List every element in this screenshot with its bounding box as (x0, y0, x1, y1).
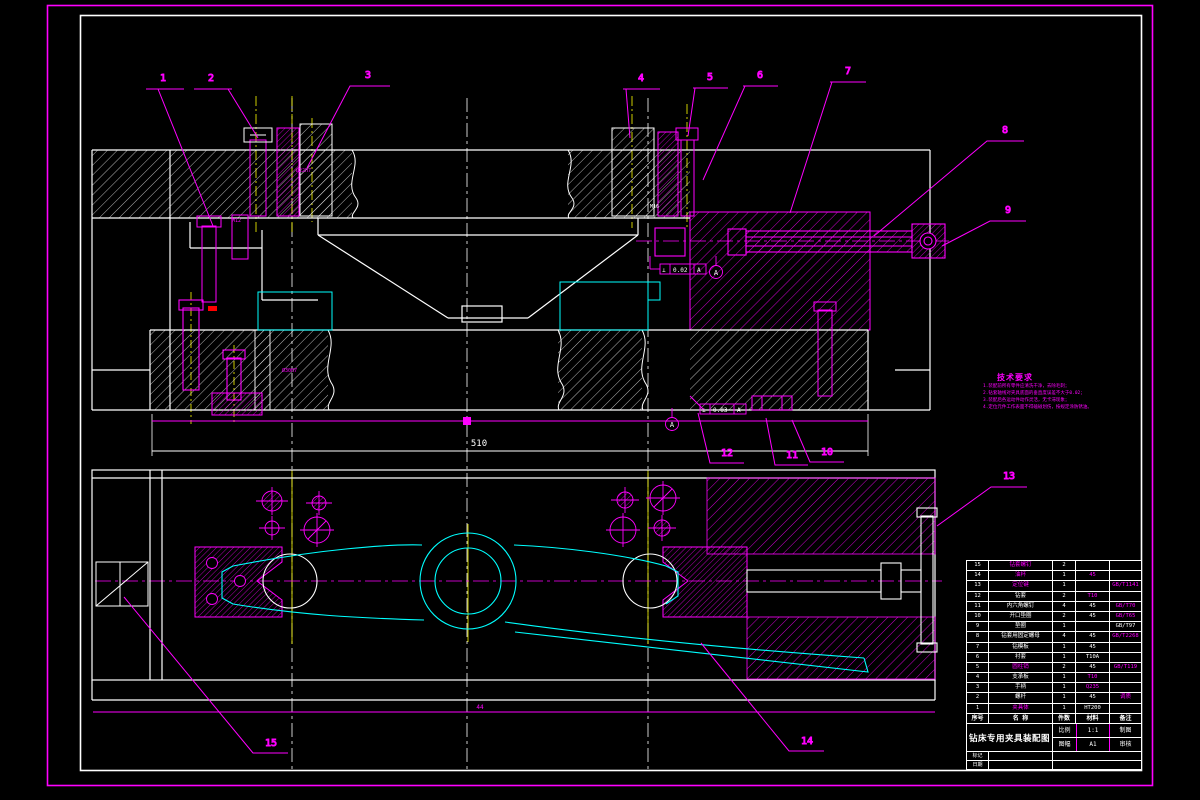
balloon-10: 10 (792, 420, 844, 462)
bom-row: 5 圆柱销 2 45 GB/T119 (967, 663, 1141, 673)
svg-text:6: 6 (757, 70, 763, 81)
bom-row: 7 钻模板 1 45 (967, 643, 1141, 653)
workpiece-section-outline (258, 282, 660, 330)
plan-left-adjuster (96, 562, 148, 606)
svg-text:12: 12 (721, 448, 733, 459)
red-mark (208, 306, 217, 311)
technical-requirements: 技术要求 1.装配前所有零件应清洗干净，去除毛刺；2.钻套轴线对夹具底面的垂直度… (983, 372, 1095, 411)
dimensions-plan: 44 (93, 704, 935, 712)
bom-row: 6 衬套 1 T10A (967, 653, 1141, 663)
section-view (92, 124, 945, 415)
svg-text:5: 5 (707, 72, 713, 83)
svg-text:15: 15 (265, 738, 277, 749)
title-block: 15 钻套螺钉 2 14 油杯 1 45 13 定位键 1 GB/T1141 (966, 560, 1142, 770)
cad-drawing-canvas: 510 ⊥ 0.02 A A ⊥ 0.03 A A Ø22H7 M12 Ø30H… (0, 0, 1200, 800)
svg-text:7: 7 (845, 66, 851, 77)
svg-text:A: A (670, 421, 675, 429)
svg-text:14: 14 (801, 736, 813, 747)
dim-overall-width: 510 (471, 439, 487, 449)
bom-row: 4 支承板 1 T10 (967, 673, 1141, 683)
svg-text:3: 3 (365, 70, 371, 81)
bom-row: 11 内六角螺钉 4 45 GB/T70 (967, 602, 1141, 612)
plan-holes-right (606, 481, 680, 547)
svg-text:13: 13 (1003, 471, 1015, 482)
datum-symbol-2: A (666, 408, 679, 431)
balloon-6: 6 (703, 70, 778, 180)
dimensions-section: 510 (152, 414, 868, 456)
bom-rows: 15 钻套螺钉 2 14 油杯 1 45 13 定位键 1 GB/T1141 (967, 561, 1141, 714)
svg-text:A: A (697, 267, 701, 274)
bom-row: 1 夹具体 1 HT200 (967, 704, 1141, 714)
bom-row: 3 手柄 1 Q235 (967, 683, 1141, 693)
title-info: 比例 1:1 制图 图幅 A1 审核 (1053, 724, 1141, 751)
balloon-5: 5 (688, 72, 728, 136)
svg-text:1: 1 (160, 73, 166, 84)
svg-text:11: 11 (786, 450, 798, 461)
svg-text:0.02: 0.02 (673, 267, 688, 274)
bolt-left-middle (197, 215, 248, 302)
balloon-13: 13 (937, 471, 1027, 526)
bom-row: 13 定位键 1 GB/T1141 (967, 581, 1141, 591)
bom-row: 9 垫圈 1 GB/T97 (967, 622, 1141, 632)
svg-text:2: 2 (208, 73, 214, 84)
title-footer: 标记 日期 (967, 752, 1141, 770)
bom-row: 15 钻套螺钉 2 (967, 561, 1141, 571)
svg-text:10: 10 (821, 447, 833, 458)
bom-row: 14 油杯 1 45 (967, 571, 1141, 581)
balloon-9: 9 (942, 205, 1026, 246)
tech-requirements-title: 技术要求 (997, 372, 1095, 383)
svg-text:4: 4 (638, 73, 644, 84)
svg-text:A: A (737, 407, 741, 414)
drawing-title: 钻床专用夹具装配图 (967, 724, 1053, 751)
svg-text:Ø30H7: Ø30H7 (282, 367, 297, 374)
bom-row: 8 钻套用固定螺母 4 45 GB/T2268 (967, 632, 1141, 642)
tech-requirements-lines: 1.装配前所有零件应清洗干净，去除毛刺；2.钻套轴线对夹具底面的垂直度误差不大于… (983, 383, 1095, 411)
svg-text:Ø22H7: Ø22H7 (296, 167, 311, 174)
svg-text:8: 8 (1002, 125, 1008, 136)
svg-text:M16: M16 (650, 204, 659, 210)
svg-text:⊥: ⊥ (702, 407, 706, 414)
svg-text:⊥: ⊥ (662, 267, 666, 274)
balloon-7: 7 (790, 66, 866, 213)
svg-text:0.03: 0.03 (713, 407, 728, 414)
bom-row: 10 开口垫圈 2 45 GB/T65 (967, 612, 1141, 622)
svg-text:9: 9 (1005, 205, 1011, 216)
dim-base-height: 44 (476, 704, 484, 711)
balloon-8: 8 (874, 125, 1024, 236)
plan-holes-left (256, 487, 334, 547)
bom-row: 2 螺杆 1 45 调质 (967, 693, 1141, 703)
bom-row: 12 钻套 2 T10 (967, 592, 1141, 602)
balloon-12: 12 (698, 413, 744, 463)
svg-text:M12: M12 (232, 218, 241, 224)
balloon-15: 15 (124, 597, 288, 753)
bom-header: 序号 名 称 件数 材料 备注 (967, 714, 1141, 724)
plan-view (92, 470, 937, 700)
